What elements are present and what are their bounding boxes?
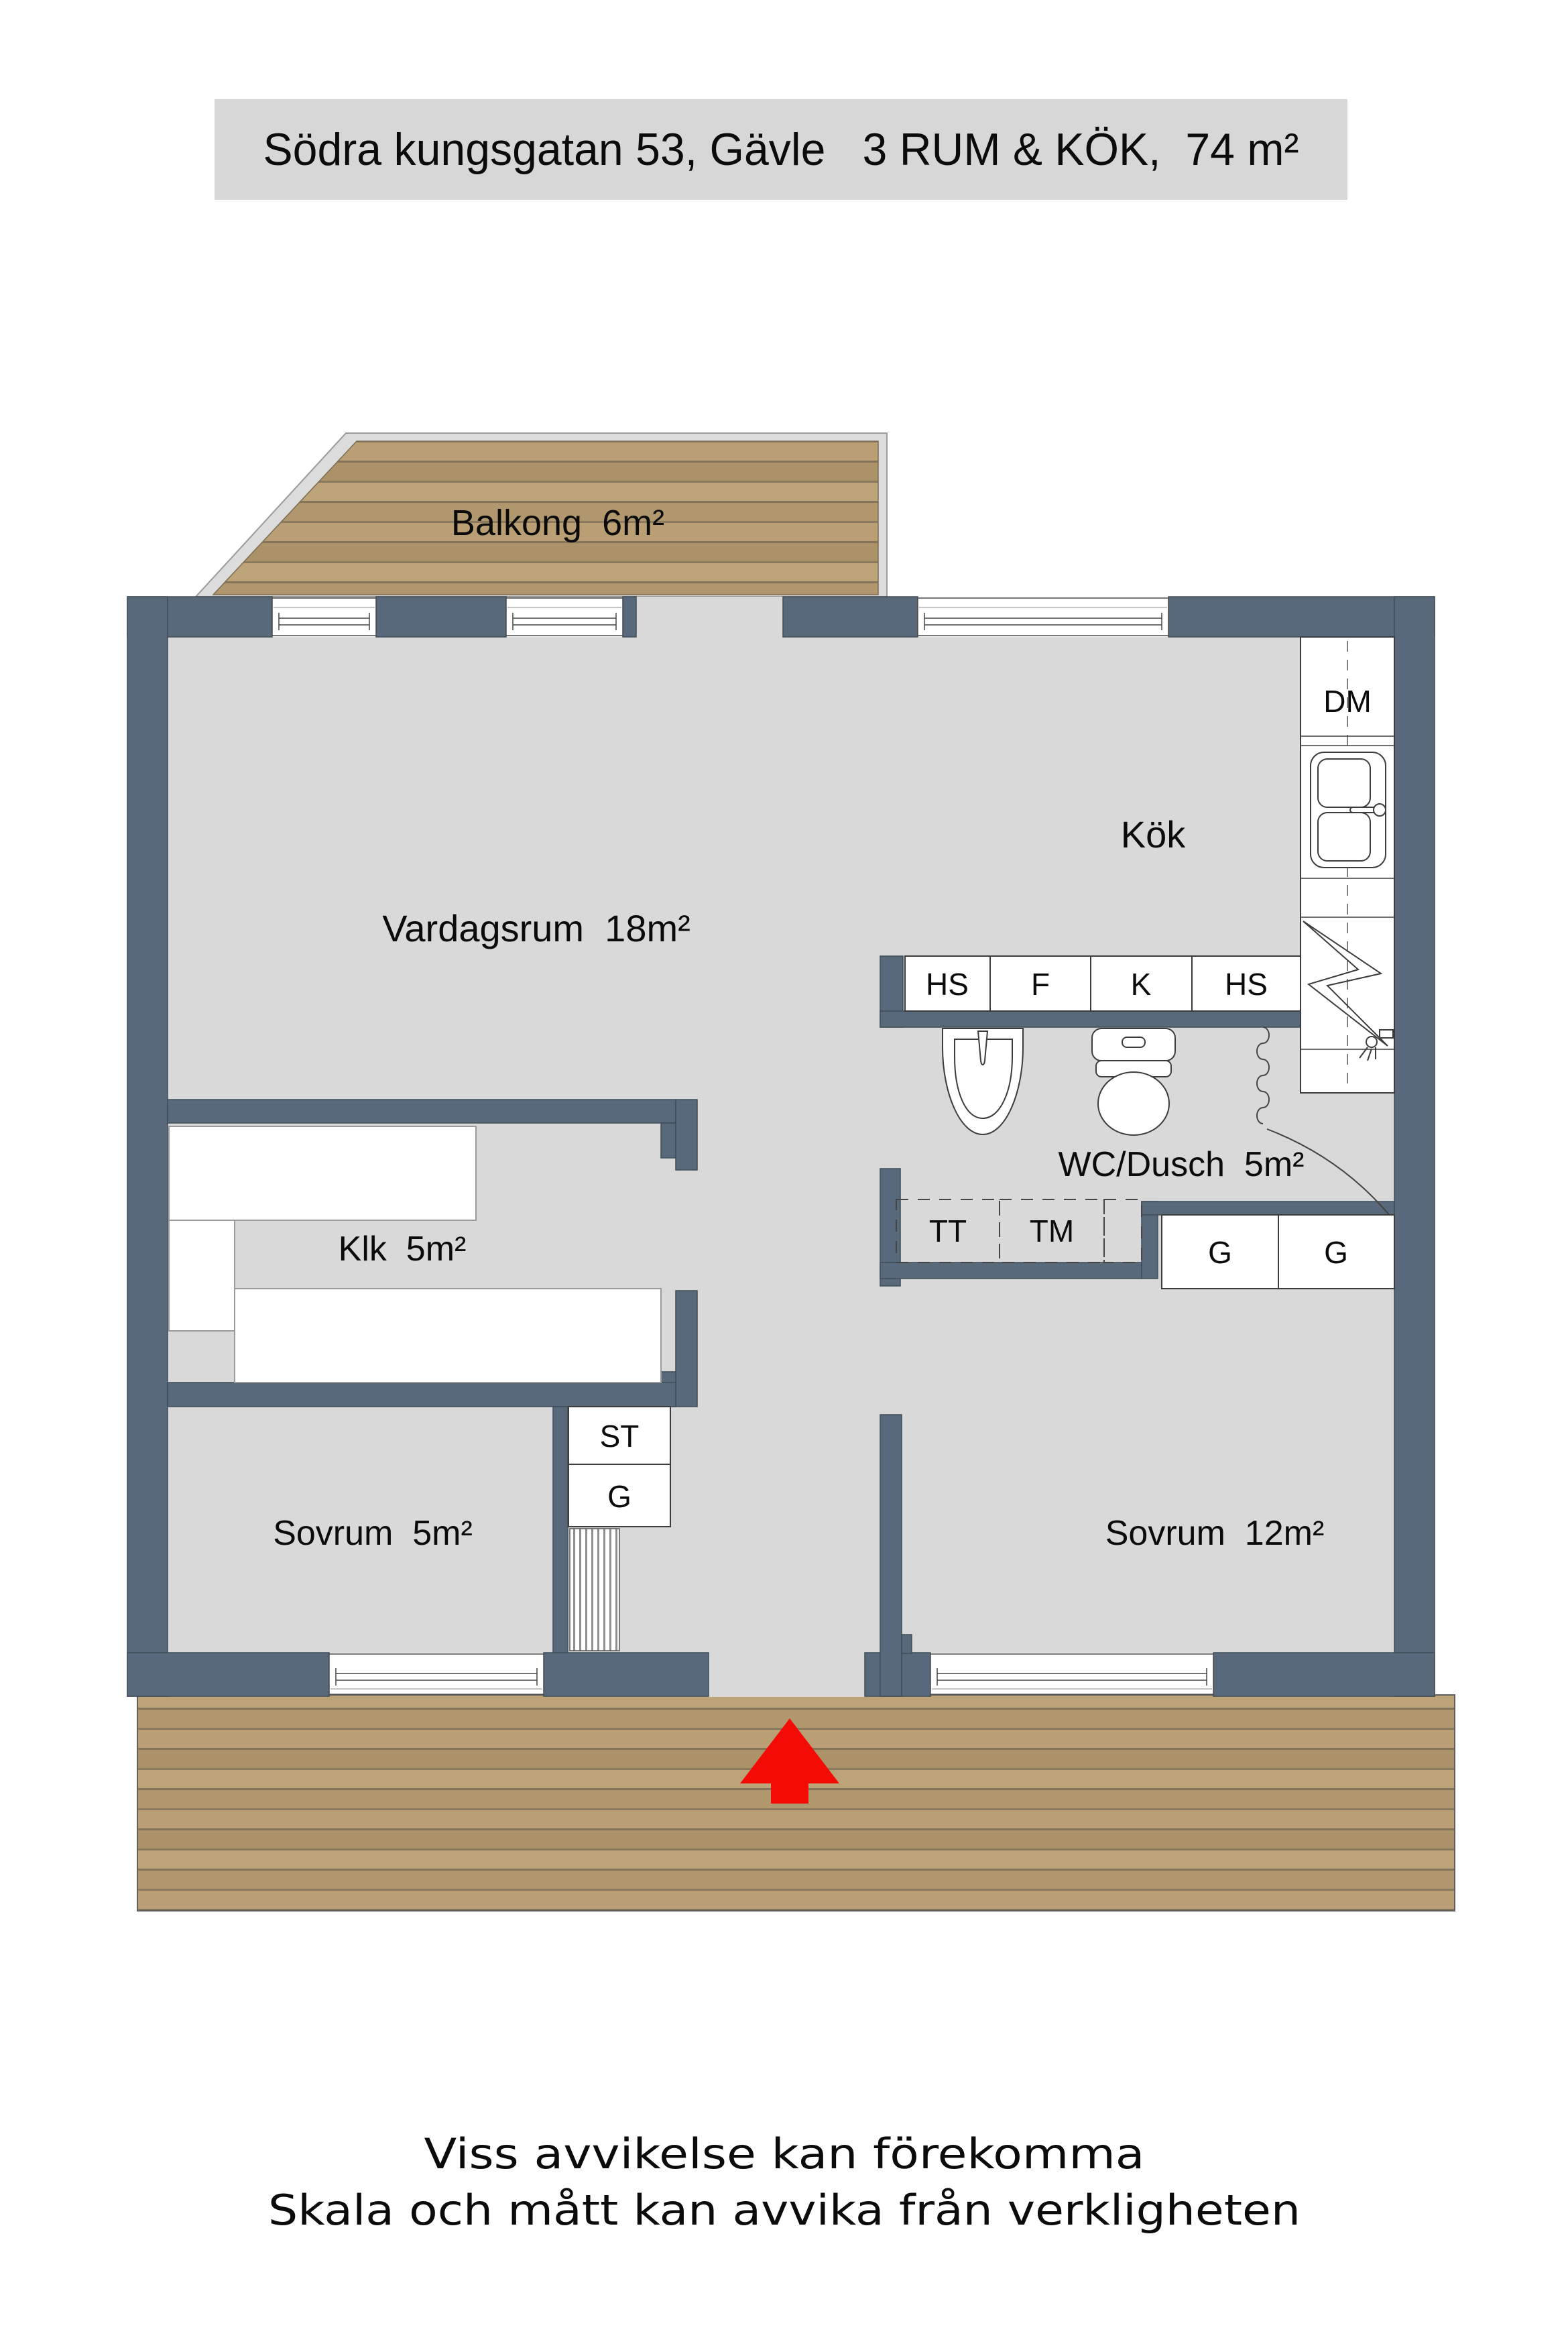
wall-segment: [623, 597, 636, 637]
window: [930, 1654, 1213, 1694]
wall-segment: [880, 1415, 902, 1696]
wall-segment: [168, 1383, 676, 1407]
window: [918, 598, 1168, 636]
large-bedroom-label: Sovrum 12m²: [1105, 1514, 1325, 1553]
wall-segment: [676, 1100, 697, 1170]
dishwasher-label: DM: [1323, 684, 1372, 719]
floorplan-image: Södra kungsgatan 53, Gävle 3 RUM & KÖK, …: [0, 0, 1568, 2352]
wall-segment: [376, 597, 506, 637]
kitchen-cabinet-row: HS F K HS: [905, 956, 1301, 1011]
dryer-label: TT: [929, 1214, 967, 1248]
wardrobe-g2-label: G: [1324, 1235, 1348, 1270]
bathroom-label: WC/Dusch 5m²: [1059, 1145, 1305, 1184]
living-room-label: Vardagsrum 18m²: [382, 907, 690, 949]
wall-segment: [553, 1407, 568, 1653]
title-bar: Södra kungsgatan 53, Gävle 3 RUM & KÖK, …: [215, 99, 1347, 200]
wall-segment: [1142, 1201, 1394, 1215]
wall-segment: [676, 1291, 697, 1407]
fridge-label: K: [1131, 967, 1152, 1002]
wall-segment: [544, 1653, 709, 1696]
shelf: [169, 1126, 476, 1220]
wall-segment: [127, 597, 168, 1696]
wall-segment: [661, 1123, 676, 1158]
cleaning-closet-label: ST: [600, 1419, 640, 1454]
shelf: [235, 1289, 661, 1383]
page-title: Södra kungsgatan 53, Gävle 3 RUM & KÖK, …: [263, 124, 1299, 175]
wall-segment: [1394, 597, 1435, 1696]
disclaimer-line2: Skala och mått kan avvika från verklighe…: [268, 2186, 1301, 2235]
large-bedroom-wardrobes: G G: [1162, 1215, 1394, 1289]
wardrobe-g1-label: G: [1208, 1235, 1232, 1270]
freezer-label: F: [1031, 967, 1050, 1002]
kitchen-sink-icon: [1311, 752, 1386, 868]
window: [272, 598, 376, 636]
disclaimer-line1: Viss avvikelse kan förekomma: [424, 2129, 1145, 2178]
small-bedroom-label: Sovrum 5m²: [273, 1514, 473, 1553]
floorplan-page: Södra kungsgatan 53, Gävle 3 RUM & KÖK, …: [0, 0, 1568, 2352]
window: [506, 598, 623, 636]
wardrobe-g3-label: G: [607, 1479, 631, 1514]
radiator-shaft-icon: [570, 1529, 619, 1651]
wall-segment: [880, 1262, 1142, 1279]
shelf: [169, 1220, 235, 1331]
wall-segment: [783, 597, 918, 637]
wall-segment: [127, 1653, 329, 1696]
wall-segment: [1213, 1653, 1435, 1696]
closet-label: Klk 5m²: [339, 1230, 467, 1269]
window: [329, 1654, 544, 1694]
washer-label: TM: [1030, 1214, 1074, 1248]
cabinet-hs-left-label: HS: [926, 967, 969, 1002]
balcony-label: Balkong 6m²: [451, 503, 664, 543]
entrance-opening: [709, 1653, 865, 1697]
kitchen-label: Kök: [1121, 813, 1186, 856]
wall-segment: [168, 1100, 676, 1123]
balcony-door-opening: [636, 597, 783, 638]
kitchen-counter: DM: [1301, 637, 1394, 1093]
cabinet-hs-right-label: HS: [1225, 967, 1268, 1002]
